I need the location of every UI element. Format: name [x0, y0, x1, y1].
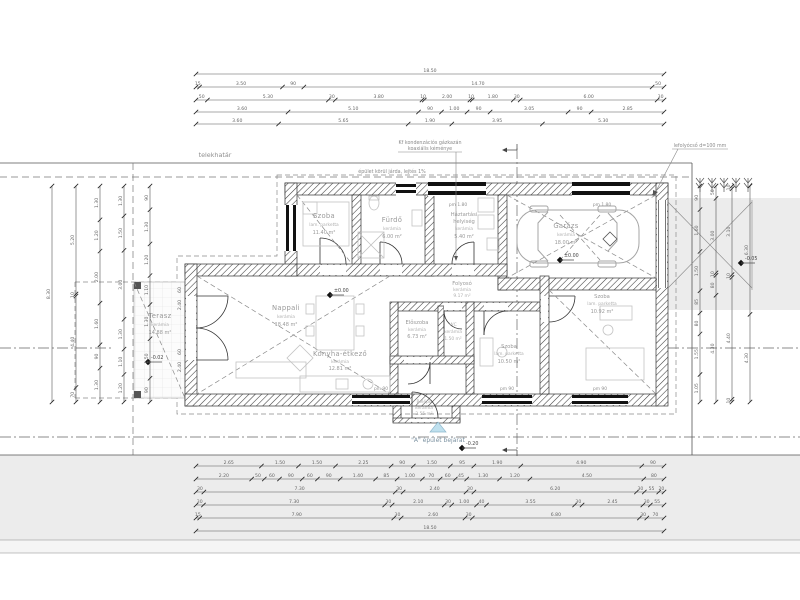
svg-text:10.50 m²: 10.50 m² — [498, 359, 521, 365]
svg-text:30: 30 — [640, 512, 646, 518]
svg-text:1.60: 1.60 — [94, 319, 100, 329]
svg-text:-0.20: -0.20 — [466, 441, 478, 447]
svg-text:3.60: 3.60 — [232, 118, 242, 124]
svg-text:2.10: 2.10 — [413, 499, 423, 505]
svg-text:3.55: 3.55 — [525, 499, 535, 505]
svg-text:2.85: 2.85 — [622, 106, 632, 112]
svg-text:45: 45 — [458, 473, 464, 479]
svg-text:1.20: 1.20 — [118, 383, 124, 393]
street-band-2 — [0, 540, 800, 553]
window-bedroom2-icon — [482, 395, 532, 405]
svg-text:30: 30 — [466, 512, 472, 518]
svg-text:30: 30 — [385, 499, 391, 505]
window-bedroom3-icon — [572, 395, 628, 405]
svg-text:85: 85 — [383, 473, 389, 479]
svg-text:2.20: 2.20 — [219, 473, 229, 479]
svg-text:80: 80 — [710, 282, 716, 288]
svg-text:3.05: 3.05 — [524, 106, 534, 112]
svg-text:30: 30 — [467, 486, 473, 492]
window-kitchen-icon — [352, 395, 410, 405]
svg-text:70: 70 — [652, 512, 658, 518]
svg-text:2.25: 2.25 — [358, 460, 368, 466]
window-top-1-icon — [428, 181, 486, 196]
walkway-note: épület körül járda, lejtés 1% — [358, 168, 426, 175]
svg-text:90: 90 — [144, 195, 150, 201]
svg-text:18.00 m²: 18.00 m² — [555, 240, 578, 246]
room-label-vestibule: Belépő kerámia 2.55 m² — [415, 398, 433, 417]
hall-door-opening — [404, 357, 430, 363]
svg-text:1.50 m²: 1.50 m² — [444, 336, 461, 342]
svg-text:10.92 m²: 10.92 m² — [591, 309, 614, 315]
svg-text:30: 30 — [658, 94, 664, 100]
svg-text:3.00: 3.00 — [118, 280, 124, 290]
svg-text:4.50: 4.50 — [582, 473, 592, 479]
svg-text:1.05: 1.05 — [694, 383, 700, 393]
svg-text:14.70: 14.70 — [471, 81, 484, 87]
svg-text:4.40: 4.40 — [726, 333, 732, 343]
floor-plan-page: Szoba lam. parketta 11.40 m² Fürdő kerám… — [0, 0, 800, 600]
svg-text:9.17 m²: 9.17 m² — [453, 293, 470, 299]
svg-text:90: 90 — [476, 106, 482, 112]
svg-text:kerámia: kerámia — [444, 328, 462, 335]
room-label-bedroom1: Szoba lam. parketta 11.40 m² — [309, 212, 339, 236]
svg-text:WC: WC — [449, 322, 456, 328]
svg-text:-0.05: -0.05 — [745, 256, 757, 262]
street-band — [0, 455, 800, 540]
pm-label-bottom-1: pm 90 — [374, 386, 388, 392]
svg-text:Fürdő: Fürdő — [382, 215, 403, 224]
svg-text:1.30: 1.30 — [118, 329, 124, 339]
svg-text:Garázs: Garázs — [553, 222, 578, 230]
bedroom2-door-opening — [484, 303, 508, 310]
svg-text:90: 90 — [577, 106, 583, 112]
svg-text:5.30: 5.30 — [598, 118, 608, 124]
svg-text:12.81 m²: 12.81 m² — [329, 366, 352, 372]
svg-text:90: 90 — [650, 460, 656, 466]
svg-text:11.40 m²: 11.40 m² — [313, 230, 336, 236]
svg-text:5.30: 5.30 — [263, 94, 273, 100]
window-top-2-icon — [572, 181, 630, 196]
svg-text:5.65: 5.65 — [338, 118, 348, 124]
svg-text:4.40: 4.40 — [70, 337, 76, 347]
terrace-door-opening — [186, 296, 196, 360]
svg-text:2.00: 2.00 — [94, 272, 100, 282]
svg-text:18.50: 18.50 — [423, 525, 436, 531]
svg-text:1.50: 1.50 — [118, 228, 124, 238]
svg-text:Konyha-étkező: Konyha-étkező — [313, 349, 367, 358]
svg-text:1.50: 1.50 — [275, 460, 285, 466]
svg-text:4.90: 4.90 — [576, 460, 586, 466]
pm-label-top-1: pm 1.80 — [449, 202, 467, 208]
svg-text:3.80: 3.80 — [374, 94, 384, 100]
svg-text:90: 90 — [94, 353, 100, 359]
svg-text:3.50: 3.50 — [236, 81, 246, 87]
svg-text:60: 60 — [177, 287, 183, 293]
svg-text:kerámia: kerámia — [277, 313, 295, 320]
terrace — [134, 282, 185, 398]
utility-door-opening — [452, 265, 474, 275]
svg-text:20: 20 — [658, 486, 664, 492]
svg-text:2.60: 2.60 — [428, 512, 438, 518]
svg-text:30: 30 — [514, 94, 520, 100]
svg-text:95: 95 — [459, 460, 465, 466]
svg-text:30: 30 — [445, 499, 451, 505]
svg-text:lam. parketta: lam. parketta — [494, 351, 524, 357]
svg-text:kerámia: kerámia — [331, 358, 349, 365]
svg-text:kerámia: kerámia — [415, 404, 433, 411]
svg-text:30: 30 — [644, 499, 650, 505]
svg-text:90: 90 — [144, 387, 150, 393]
svg-text:helyiség: helyiség — [453, 218, 475, 225]
svg-text:kerámia: kerámia — [455, 225, 473, 232]
boiler-note-line2: koaxiális kéménye — [408, 145, 452, 152]
svg-text:30: 30 — [637, 486, 643, 492]
property-boundary-label: telekhatár — [199, 151, 232, 159]
entrance-label: "A" épület bejárat — [411, 437, 465, 444]
svg-text:Nappali: Nappali — [272, 304, 300, 312]
svg-text:1.00: 1.00 — [459, 499, 469, 505]
window-bedroom1-icon — [284, 205, 298, 251]
svg-text:1.80: 1.80 — [488, 94, 498, 100]
svg-text:30: 30 — [329, 94, 335, 100]
svg-text:3.00: 3.00 — [710, 230, 716, 240]
svg-text:5.40 m²: 5.40 m² — [454, 234, 474, 240]
bath-door-opening — [380, 265, 402, 275]
bedroom3-door-opening — [541, 296, 548, 322]
svg-text:3.10: 3.10 — [726, 227, 732, 237]
svg-text:70: 70 — [428, 473, 434, 479]
bedroom1-door-opening — [320, 265, 346, 275]
svg-text:Szoba: Szoba — [501, 344, 517, 350]
svg-text:Terasz: Terasz — [147, 312, 171, 320]
svg-text:90: 90 — [326, 473, 332, 479]
driveway-band — [656, 198, 800, 310]
svg-text:90: 90 — [427, 106, 433, 112]
pm-label-bottom-2: pm 90 — [500, 386, 514, 392]
svg-text:1.30: 1.30 — [144, 316, 150, 326]
svg-text:55: 55 — [654, 499, 660, 505]
window-bath-icon — [396, 182, 416, 196]
svg-text:6.00 m²: 6.00 m² — [382, 234, 402, 240]
svg-text:Háztartási: Háztartási — [451, 211, 478, 218]
svg-text:30: 30 — [575, 499, 581, 505]
svg-text:2.40: 2.40 — [429, 486, 439, 492]
svg-text:14.88 m²: 14.88 m² — [149, 330, 172, 336]
svg-text:7.30: 7.30 — [289, 499, 299, 505]
svg-text:6.00: 6.00 — [584, 94, 594, 100]
svg-text:1.30: 1.30 — [478, 473, 488, 479]
svg-text:60: 60 — [307, 473, 313, 479]
svg-text:1.50: 1.50 — [144, 353, 150, 363]
svg-text:6.80: 6.80 — [551, 512, 561, 518]
svg-text:kerámia: kerámia — [453, 286, 471, 293]
svg-text:kerámia: kerámia — [557, 231, 575, 238]
svg-text:1.10: 1.10 — [144, 285, 150, 295]
svg-text:1.20: 1.20 — [144, 255, 150, 265]
room-label-terrace: Terasz kerámia 14.88 m² — [147, 312, 171, 336]
svg-text:1.30: 1.30 — [118, 196, 124, 206]
svg-text:4.30: 4.30 — [710, 343, 716, 353]
svg-text:90: 90 — [288, 473, 294, 479]
svg-text:1.60: 1.60 — [694, 225, 700, 235]
svg-text:60: 60 — [269, 473, 275, 479]
svg-text:Szoba: Szoba — [594, 294, 610, 300]
pm-label-top-2: pm 1.80 — [593, 202, 611, 208]
room-label-entry-hall: Előszoba kerámia 6.73 m² — [406, 320, 429, 340]
svg-text:30: 30 — [396, 486, 402, 492]
entrance-door-opening — [412, 419, 442, 422]
svg-text:2.45: 2.45 — [607, 499, 617, 505]
room-label-corridor: Folyosó kerámia 9.17 m² — [452, 280, 472, 299]
svg-text:7.30: 7.30 — [294, 486, 304, 492]
svg-text:1.30: 1.30 — [94, 380, 100, 390]
svg-text:Előszoba: Előszoba — [406, 320, 429, 326]
svg-text:4.30: 4.30 — [744, 353, 750, 363]
svg-text:1.55: 1.55 — [694, 349, 700, 359]
svg-text:30: 30 — [395, 512, 401, 518]
svg-text:18.50: 18.50 — [423, 68, 436, 74]
svg-text:Belépő: Belépő — [416, 398, 431, 405]
svg-text:40: 40 — [479, 499, 485, 505]
wc-door-opening — [444, 303, 462, 310]
svg-text:30: 30 — [197, 499, 203, 505]
svg-text:18.48 m²: 18.48 m² — [275, 322, 298, 328]
svg-text:1.00: 1.00 — [449, 106, 459, 112]
svg-text:2.40: 2.40 — [177, 362, 183, 372]
svg-text:30: 30 — [197, 486, 203, 492]
svg-text:2.00: 2.00 — [442, 94, 452, 100]
svg-text:-0.02: -0.02 — [151, 355, 163, 361]
svg-text:1.40: 1.40 — [353, 473, 363, 479]
svg-text:2.55 m²: 2.55 m² — [415, 411, 432, 417]
svg-text:1.30: 1.30 — [144, 222, 150, 232]
svg-text:6.20: 6.20 — [550, 486, 560, 492]
svg-text:kerámia: kerámia — [408, 326, 426, 333]
svg-text:80: 80 — [694, 320, 700, 326]
svg-text:Szoba: Szoba — [313, 212, 335, 220]
svg-text:70: 70 — [70, 392, 76, 398]
svg-text:60: 60 — [445, 473, 451, 479]
svg-text:90: 90 — [399, 460, 405, 466]
svg-text:6.73 m²: 6.73 m² — [407, 334, 427, 340]
svg-text:80: 80 — [651, 473, 657, 479]
svg-text:55: 55 — [649, 486, 655, 492]
room-label-bath: Fürdő kerámia 6.00 m² — [382, 215, 403, 240]
svg-text:6.30: 6.30 — [744, 245, 750, 255]
svg-text:7.90: 7.90 — [292, 512, 302, 518]
svg-text:90: 90 — [290, 81, 296, 87]
svg-text:1.30: 1.30 — [94, 198, 100, 208]
svg-text:60: 60 — [177, 349, 183, 355]
svg-text:2.65: 2.65 — [224, 460, 234, 466]
svg-text:1.20: 1.20 — [510, 473, 520, 479]
svg-text:5.10: 5.10 — [348, 106, 358, 112]
svg-text:1.10: 1.10 — [118, 357, 124, 367]
svg-text:2.40: 2.40 — [177, 300, 183, 310]
svg-text:1.20: 1.20 — [94, 230, 100, 240]
svg-text:lam. parketta: lam. parketta — [587, 301, 617, 307]
svg-text:kerámia: kerámia — [151, 321, 169, 328]
floor-plan-svg: Szoba lam. parketta 11.40 m² Fürdő kerám… — [0, 0, 800, 600]
svg-text:1.50: 1.50 — [312, 460, 322, 466]
svg-text:lam. parketta: lam. parketta — [309, 222, 339, 228]
svg-text:5.20: 5.20 — [70, 235, 76, 245]
svg-text:8.30: 8.30 — [46, 289, 52, 299]
svg-text:Folyosó: Folyosó — [452, 280, 472, 287]
svg-text:3.95: 3.95 — [492, 118, 502, 124]
svg-text:1.50: 1.50 — [694, 266, 700, 276]
boiler-note-line1: Kf kondenzációs gázkazán — [399, 139, 462, 146]
svg-text:50: 50 — [255, 473, 261, 479]
pm-label-bottom-3: pm 90 — [593, 386, 607, 392]
site-background — [0, 0, 800, 600]
svg-text:50: 50 — [199, 94, 205, 100]
svg-text:50: 50 — [710, 189, 716, 195]
svg-text:1.00: 1.00 — [405, 473, 415, 479]
svg-text:85: 85 — [694, 299, 700, 305]
svg-text:50: 50 — [655, 81, 661, 87]
svg-text:90: 90 — [694, 195, 700, 201]
svg-text:1.50: 1.50 — [427, 460, 437, 466]
svg-text:kerámia: kerámia — [383, 225, 401, 232]
svg-text:1.90: 1.90 — [492, 460, 502, 466]
svg-text:±0.00: ±0.00 — [564, 253, 579, 259]
svg-text:1.90: 1.90 — [425, 118, 435, 124]
svg-text:3.60: 3.60 — [237, 106, 247, 112]
downpipe-note: lefolyócső d=100 mm — [674, 142, 727, 149]
svg-text:±0.00: ±0.00 — [334, 288, 349, 294]
